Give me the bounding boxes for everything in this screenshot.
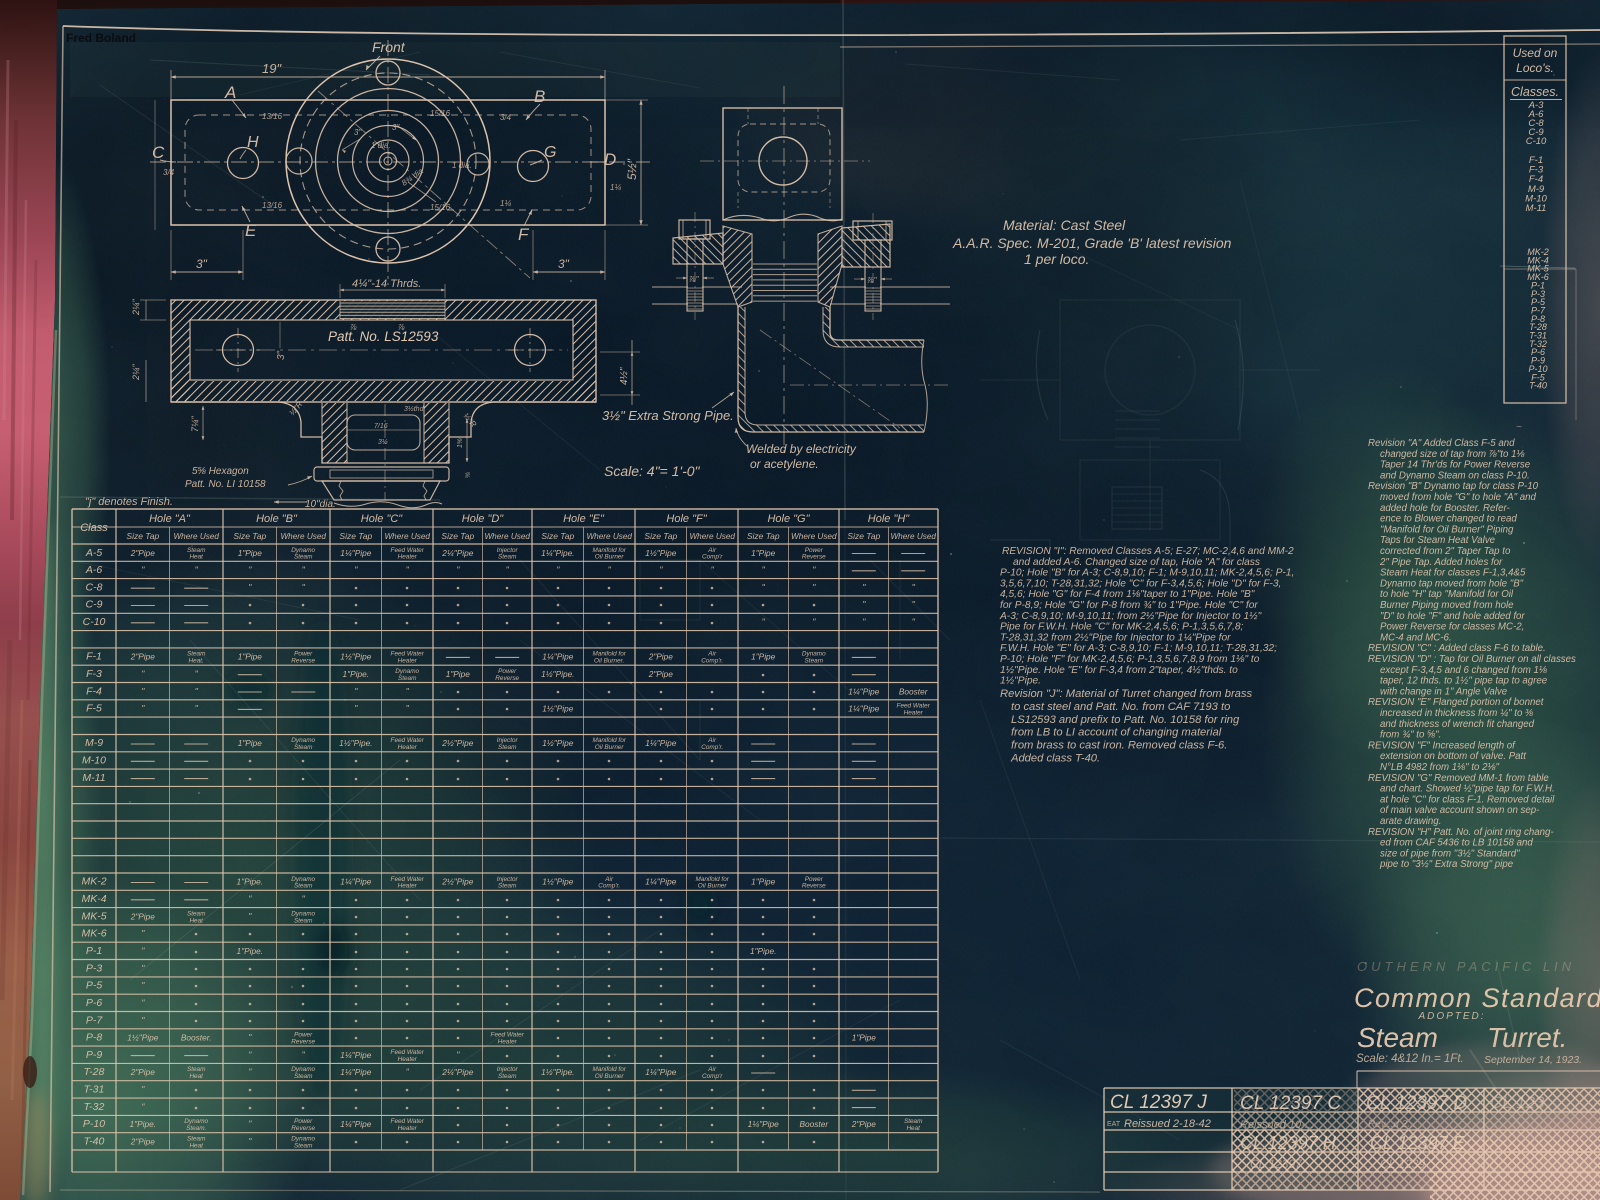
svg-text:OUTHERN PACIFIC LIN: OUTHERN PACIFIC LIN xyxy=(1357,959,1575,974)
svg-text:3½thd: 3½thd xyxy=(404,405,425,413)
svg-text:Reverse: Reverse xyxy=(291,1039,315,1046)
svg-text:CL 12397: CL 12397 xyxy=(1250,1157,1303,1171)
svg-text:2"Pipe: 2"Pipe xyxy=(851,1119,877,1129)
svg-text:M-11: M-11 xyxy=(82,772,105,784)
svg-text:Oil Burner.: Oil Burner. xyxy=(594,658,624,665)
svg-text:to cast steel and Patt. No.: to cast steel and Patt. No. from CAF 719… xyxy=(1011,701,1230,713)
svg-text:Taper 14 Thr'ds for Power Reve: Taper 14 Thr'ds for Power Reverse xyxy=(1380,460,1531,471)
svg-text:T-31: T-31 xyxy=(84,1084,105,1096)
svg-text:Heat.: Heat. xyxy=(189,658,204,665)
svg-text:Size Tap: Size Tap xyxy=(644,531,677,541)
svg-text:Loco's.: Loco's. xyxy=(1516,61,1554,75)
svg-text:Size Tap: Size Tap xyxy=(233,531,266,541)
svg-text:Heater: Heater xyxy=(398,744,418,751)
svg-text:except F-3,4,5 and 6 changed f: except F-3,4,5 and 6 changed from 1⅛ xyxy=(1380,665,1548,676)
svg-text:1"Pipe: 1"Pipe xyxy=(751,548,776,558)
svg-text:extension on bottom of valve.: extension on bottom of valve. Patt xyxy=(1380,751,1527,762)
svg-text:2¼"Pipe: 2¼"Pipe xyxy=(441,1067,473,1077)
svg-text:2"Pipe: 2"Pipe xyxy=(130,911,156,921)
svg-text:Oil Burner: Oil Burner xyxy=(595,554,625,561)
svg-text:or acetylene.: or acetylene. xyxy=(750,457,819,471)
svg-text:F-5: F-5 xyxy=(86,703,102,715)
svg-text:1¼"Pipe: 1¼"Pipe xyxy=(542,652,573,662)
svg-text:F-3: F-3 xyxy=(86,668,102,680)
svg-text:A-6: A-6 xyxy=(85,564,103,576)
svg-text:2"Pipe: 2"Pipe xyxy=(130,652,156,662)
svg-text:MC-4 and MC-6.: MC-4 and MC-6. xyxy=(1380,632,1452,643)
svg-text:Reissued 10-...: Reissued 10-... xyxy=(1240,1119,1314,1131)
svg-text:Revision "A" Added Class F-5: Revision "A" Added Class F-5 and xyxy=(1368,438,1515,449)
svg-text:REVISION "D" : Tap for Oil Bu: REVISION "D" : Tap for Oil Burner on all… xyxy=(1368,654,1576,665)
svg-text:Steam: Steam xyxy=(398,675,417,682)
svg-text:B: B xyxy=(534,87,545,106)
svg-text:Hole "B": Hole "B" xyxy=(256,513,298,525)
svg-text:Steam.: Steam. xyxy=(186,1125,206,1132)
svg-text:3": 3" xyxy=(196,257,208,271)
svg-text:C-9: C-9 xyxy=(86,599,103,611)
svg-text:Added class T-40.: Added class T-40. xyxy=(1010,753,1100,765)
svg-text:1¼"Pipe: 1¼"Pipe xyxy=(340,548,371,558)
svg-text:⅞: ⅞ xyxy=(350,323,357,332)
svg-text:C-10: C-10 xyxy=(83,616,106,628)
svg-text:Burner Piping moved from hole: Burner Piping moved from hole xyxy=(1380,600,1514,611)
svg-text:Class: Class xyxy=(80,522,108,534)
svg-text:Fred Boland: Fred Boland xyxy=(66,31,136,45)
svg-text:1¼"Pipe: 1¼"Pipe xyxy=(340,1119,371,1129)
svg-text:Size Tap: Size Tap xyxy=(126,531,159,541)
svg-text:Where Used: Where Used xyxy=(484,532,530,541)
svg-text:1"Pipe.: 1"Pipe. xyxy=(750,946,776,956)
svg-text:changed size of tap from ⅞"to: changed size of tap from ⅞"to 1⅛ xyxy=(1380,449,1525,460)
svg-text:"D" to hole "F" and hole added: "D" to hole "F" and hole added for xyxy=(1380,611,1525,622)
svg-text:Reverse: Reverse xyxy=(802,883,826,890)
svg-text:Booster: Booster xyxy=(899,686,929,696)
svg-text:Comp'r.: Comp'r. xyxy=(598,883,620,890)
svg-text:13/16: 13/16 xyxy=(262,201,283,210)
svg-text:Where Used: Where Used xyxy=(384,532,430,541)
svg-text:T-28: T-28 xyxy=(84,1066,105,1078)
svg-text:Welded by electricity: Welded by electricity xyxy=(746,442,857,456)
svg-text:Size Tap: Size Tap xyxy=(747,531,780,541)
svg-text:A.A.R. Spec. M-201, Grade 'B': A.A.R. Spec. M-201, Grade 'B' latest rev… xyxy=(952,235,1232,251)
svg-text:CL 123: CL 123 xyxy=(1490,1093,1545,1112)
svg-text:Steam: Steam xyxy=(294,883,313,890)
svg-text:for P-8,9; Hole "G" for P-8 fr: for P-8,9; Hole "G" for P-8 from ¾" to 1… xyxy=(1000,600,1258,611)
svg-text:corrected from 2" Taper Tap to: corrected from 2" Taper Tap to xyxy=(1380,546,1511,557)
svg-text:3,5,6,7,10; T-28,31,32; Hole ": 3,5,6,7,10; T-28,31,32; Hole "C" for F-3… xyxy=(1000,578,1281,589)
svg-text:Heat: Heat xyxy=(189,1142,203,1149)
svg-text:LS12593 and prefix to Patt.: LS12593 and prefix to Patt. No. 10158 fo… xyxy=(1011,714,1240,726)
svg-text:4,5,6; Hole "G" for F-4 from 1: 4,5,6; Hole "G" for F-4 from 1⅛"taper to… xyxy=(1000,589,1255,600)
svg-text:1½"Pipe: 1½"Pipe xyxy=(542,877,573,887)
svg-text:Steam Heat for classes F-1,3,4: Steam Heat for classes F-1,3,4&5 xyxy=(1380,568,1526,579)
svg-text:from ¾" to ⅝".: from ¾" to ⅝". xyxy=(1380,730,1441,741)
svg-text:3": 3" xyxy=(354,128,362,137)
svg-text:Steam: Steam xyxy=(805,658,824,665)
svg-text:1¼"Pipe: 1¼"Pipe xyxy=(748,1119,779,1129)
svg-text:ADOPTED:: ADOPTED: xyxy=(1417,1011,1485,1022)
svg-text:MK-5: MK-5 xyxy=(81,910,106,922)
svg-text:⅞": ⅞" xyxy=(689,275,700,284)
svg-text:1½"Pipe.: 1½"Pipe. xyxy=(541,1067,574,1077)
svg-text:Steam: Steam xyxy=(294,744,313,751)
svg-text:2½"Pipe: 2½"Pipe xyxy=(441,738,473,748)
svg-text:Pipe for F.W.H. Hole "C" for: Pipe for F.W.H. Hole "C" for MK-2,4,5,6;… xyxy=(1000,622,1244,633)
svg-text:Heater: Heater xyxy=(398,658,418,665)
svg-text:Comp'r: Comp'r xyxy=(702,1073,723,1080)
svg-text:Where Used: Where Used xyxy=(689,532,735,541)
svg-text:MK-2: MK-2 xyxy=(81,876,106,888)
svg-text:Heater: Heater xyxy=(904,710,924,717)
svg-text:H: H xyxy=(247,134,259,151)
svg-text:arate drawing.: arate drawing. xyxy=(1380,816,1441,827)
svg-text:Heater: Heater xyxy=(398,1056,418,1063)
svg-text:MK-4: MK-4 xyxy=(81,893,106,905)
svg-text:2"Pipe: 2"Pipe xyxy=(648,669,674,679)
svg-text:1¼: 1¼ xyxy=(500,199,511,208)
svg-text:⅞": ⅞" xyxy=(867,276,878,285)
svg-text:2"Pipe: 2"Pipe xyxy=(130,1067,156,1077)
svg-text:1⅝: 1⅝ xyxy=(457,438,464,448)
svg-text:Steam: Steam xyxy=(294,917,313,924)
svg-text:of main valve account shown on: of main valve account shown on sep- xyxy=(1380,805,1540,816)
svg-text:Feed Water: Feed Water xyxy=(391,737,425,744)
svg-text:Heat: Heat xyxy=(189,917,203,924)
svg-text:1¼"Pipe: 1¼"Pipe xyxy=(340,1050,371,1060)
svg-text:Material: Cast Steel: Material: Cast Steel xyxy=(1003,217,1126,233)
svg-text:2¼": 2¼" xyxy=(131,363,141,381)
svg-text:1 dia.: 1 dia. xyxy=(371,141,391,150)
svg-text:2"Pipe: 2"Pipe xyxy=(130,1137,156,1147)
svg-text:Steam: Steam xyxy=(498,554,517,561)
svg-text:Manifold for: Manifold for xyxy=(593,737,627,744)
svg-text:REVISION "F" Increased length: REVISION "F" Increased length of xyxy=(1368,740,1516,751)
svg-text:Hole "E": Hole "E" xyxy=(563,513,605,525)
svg-text:E: E xyxy=(245,221,257,240)
svg-text:Revision "J": Material of Tur: Revision "J": Material of Turret changed… xyxy=(1000,688,1252,700)
svg-text:Reverse: Reverse xyxy=(291,1125,315,1132)
svg-text:Where Used: Where Used xyxy=(890,532,936,541)
svg-text:CL 12397 E: CL 12397 E xyxy=(1370,1133,1466,1153)
svg-text:CL 12397 C: CL 12397 C xyxy=(1240,1093,1341,1114)
svg-text:Dynamo tap moved from hole "B": Dynamo tap moved from hole "B" xyxy=(1380,578,1524,589)
svg-text:Size Tap: Size Tap xyxy=(441,531,474,541)
svg-text:2¼"Pipe: 2¼"Pipe xyxy=(441,548,473,558)
svg-text:REVISION "I": Removed Classes: REVISION "I": Removed Classes A-5; E-27;… xyxy=(1002,546,1294,557)
svg-text:D: D xyxy=(604,150,616,169)
svg-text:7/16: 7/16 xyxy=(374,423,388,430)
svg-text:15/16: 15/16 xyxy=(430,203,451,212)
svg-text:CL 12397 H: CL 12397 H xyxy=(1240,1133,1337,1153)
svg-text:Reverse: Reverse xyxy=(291,658,315,665)
svg-text:CL 12397 J: CL 12397 J xyxy=(1110,1092,1207,1113)
svg-text:Reissued 2-18-42: Reissued 2-18-42 xyxy=(1124,1118,1211,1130)
svg-text:Size Tap: Size Tap xyxy=(847,531,880,541)
svg-text:P-3: P-3 xyxy=(86,962,103,974)
svg-text:REVISION "H" Patt. No. of joi: REVISION "H" Patt. No. of joint ring cha… xyxy=(1368,827,1554,838)
svg-text:added hole for Booster. Refer: added hole for Booster. Refer- xyxy=(1380,503,1511,514)
svg-text:1½"Pipe. Hole "E" for F-3,4 f: 1½"Pipe. Hole "E" for F-3,4 from 2"taper… xyxy=(1000,665,1238,676)
svg-text:REVISION "E" Flanged portion: REVISION "E" Flanged portion of bonnet xyxy=(1368,697,1545,708)
svg-text:Patt. No. LS12593: Patt. No. LS12593 xyxy=(328,329,439,344)
svg-text:1½"Pipe.: 1½"Pipe. xyxy=(1000,676,1041,687)
svg-text:Dynamo: Dynamo xyxy=(291,737,315,744)
svg-text:P-6: P-6 xyxy=(86,997,103,1009)
svg-text:Steam: Steam xyxy=(294,1142,313,1149)
svg-text:P-10; Hole "F" for MK-2,4,5,6;: P-10; Hole "F" for MK-2,4,5,6; P-1,3,5,6… xyxy=(1000,654,1260,665)
svg-text:1"Pipe: 1"Pipe xyxy=(751,877,776,887)
svg-text:1¼"Pipe: 1¼"Pipe xyxy=(340,1067,371,1077)
svg-text:T-40: T-40 xyxy=(84,1136,105,1148)
svg-text:P-7: P-7 xyxy=(86,1014,104,1026)
svg-text:Oil Burner: Oil Burner xyxy=(698,883,728,890)
svg-text:Steam: Steam xyxy=(498,1073,517,1080)
svg-text:and added A-6. Changed size o: and added A-6. Changed size of tap, Hole… xyxy=(1013,557,1260,568)
svg-text:CL 1239: CL 1239 xyxy=(1380,1157,1425,1171)
svg-text:A-3; C-8,9,10; M-9,10,11; from: A-3; C-8,9,10; M-9,10,11; from 2½"Pipe f… xyxy=(999,611,1262,622)
svg-text:1"Pipe: 1"Pipe xyxy=(238,548,263,558)
svg-text:7¼": 7¼" xyxy=(190,415,200,432)
svg-text:T-28,31,32 from 2½"Pipe for In: T-28,31,32 from 2½"Pipe for Injector to … xyxy=(1000,631,1231,643)
svg-text:1¼"Pipe.: 1¼"Pipe. xyxy=(541,548,574,558)
svg-text:"j" denotes Finish.: "j" denotes Finish. xyxy=(85,496,173,508)
svg-text:Power Reverse for classes MC-2: Power Reverse for classes MC-2, xyxy=(1380,622,1524,633)
svg-text:Heater: Heater xyxy=(398,1125,418,1132)
svg-text:1"Pipe: 1"Pipe xyxy=(238,738,263,748)
svg-text:C-8: C-8 xyxy=(86,581,103,593)
svg-text:G: G xyxy=(544,144,556,161)
svg-text:1¼: 1¼ xyxy=(610,183,621,192)
svg-text:1½"Pipe: 1½"Pipe xyxy=(542,738,573,748)
svg-text:Comp'r.: Comp'r. xyxy=(701,658,723,665)
svg-text:T-32: T-32 xyxy=(84,1101,105,1113)
svg-text:Scale: 4"= 1'-0": Scale: 4"= 1'-0" xyxy=(604,463,701,479)
svg-text:2" Pipe Tap. Added holes for: 2" Pipe Tap. Added holes for xyxy=(1379,557,1503,568)
svg-text:REVISION "G" Removed MM-1 fr: REVISION "G" Removed MM-1 from table xyxy=(1368,773,1549,784)
svg-text:T-40: T-40 xyxy=(1529,381,1547,391)
svg-text:Oil Burner: Oil Burner xyxy=(595,1073,625,1080)
svg-text:Where Used: Where Used xyxy=(586,532,632,541)
svg-text:Where Used: Where Used xyxy=(791,532,837,541)
svg-text:and thickness of wrench fit ch: and thickness of wrench fit changed xyxy=(1380,719,1535,730)
svg-text:1¼"Pipe: 1¼"Pipe xyxy=(340,877,371,887)
svg-text:F: F xyxy=(518,225,530,244)
svg-text:Where Used: Where Used xyxy=(173,532,219,541)
svg-text:3": 3" xyxy=(276,350,287,360)
svg-text:1¼"Pipe: 1¼"Pipe xyxy=(645,1067,676,1077)
svg-text:1"Pipe.: 1"Pipe. xyxy=(237,877,263,887)
svg-text:Heat: Heat xyxy=(189,1073,203,1080)
svg-text:with change in 1" Angle Valve: with change in 1" Angle Valve xyxy=(1380,686,1508,697)
svg-text:F-1: F-1 xyxy=(86,651,102,663)
svg-text:Hole "H": Hole "H" xyxy=(868,513,911,525)
svg-text:Steam: Steam xyxy=(294,1073,313,1080)
svg-text:and Dynamo Steam on class P-10: and Dynamo Steam on class P-10. xyxy=(1380,470,1530,481)
svg-text:1"Pipe: 1"Pipe xyxy=(852,1033,877,1043)
svg-text:Taps for Steam Heat Valve: Taps for Steam Heat Valve xyxy=(1380,535,1496,546)
svg-text:Used on: Used on xyxy=(1513,46,1558,60)
svg-text:P-10; Hole "B" for A-3; C-8,9,: P-10; Hole "B" for A-3; C-8,9,10; F-1; M… xyxy=(1000,568,1294,579)
svg-text:~: ~ xyxy=(1516,422,1522,433)
svg-text:ed from CAF 5436 to LB 10158 a: ed from CAF 5436 to LB 10158 and xyxy=(1380,838,1533,849)
svg-text:1"Pipe: 1"Pipe xyxy=(751,652,776,662)
svg-text:1½"Pipe: 1½"Pipe xyxy=(542,704,573,714)
svg-text:3/4: 3/4 xyxy=(500,113,512,122)
svg-text:A: A xyxy=(224,83,236,102)
svg-text:P-10: P-10 xyxy=(83,1118,105,1130)
svg-text:increased in thickness from ¼": increased in thickness from ¼" to ⅜ xyxy=(1380,708,1534,719)
svg-text:Steam: Steam xyxy=(1357,1022,1438,1053)
svg-text:C: C xyxy=(152,143,165,162)
svg-text:moved from hole "G" to hole "A: moved from hole "G" to hole "A" and xyxy=(1380,492,1537,503)
svg-text:2¼": 2¼" xyxy=(131,298,141,316)
svg-text:Size Tap: Size Tap xyxy=(339,531,372,541)
svg-text:Hole "G": Hole "G" xyxy=(767,513,810,525)
svg-text:5⅝ Hexagon: 5⅝ Hexagon xyxy=(192,466,249,477)
svg-text:Front: Front xyxy=(372,39,406,55)
svg-text:1¼"Pipe: 1¼"Pipe xyxy=(848,704,879,714)
svg-text:4¼"-14 Thrds.: 4¼"-14 Thrds. xyxy=(352,278,421,290)
svg-text:Hole "F": Hole "F" xyxy=(666,513,707,525)
svg-text:Steam: Steam xyxy=(294,554,313,561)
svg-text:Heater: Heater xyxy=(398,883,418,890)
svg-text:1 per loco.: 1 per loco. xyxy=(1024,251,1089,267)
svg-text:⅝: ⅝ xyxy=(465,472,472,478)
svg-text:Hole "D": Hole "D" xyxy=(462,513,505,525)
svg-text:Comp'r: Comp'r xyxy=(702,554,723,561)
svg-text:REVISION "C" : Added class F-: REVISION "C" : Added class F-6 to table. xyxy=(1368,643,1546,654)
svg-text:3": 3" xyxy=(392,123,400,132)
svg-text:Heater: Heater xyxy=(398,554,418,561)
svg-text:Size Tap: Size Tap xyxy=(541,531,574,541)
svg-text:P-8: P-8 xyxy=(86,1032,103,1044)
svg-text:Classes.: Classes. xyxy=(1511,85,1559,99)
svg-text:and chart. Showed ½"pipe tap f: and chart. Showed ½"pipe tap for F.W.H. xyxy=(1380,784,1555,795)
svg-text:Injector: Injector xyxy=(497,737,519,744)
svg-text:Common Standard: Common Standard xyxy=(1354,983,1600,1013)
svg-text:"Manifold for Oil Burner" Pipi: "Manifold for Oil Burner" Piping xyxy=(1380,524,1514,535)
svg-text:1 dia.: 1 dia. xyxy=(452,161,472,170)
svg-text:1¼"Pipe: 1¼"Pipe xyxy=(645,877,676,887)
svg-text:5½": 5½" xyxy=(625,158,639,180)
svg-text:F.W.H. Hole "E" for A-3; C-8,: F.W.H. Hole "E" for A-3; C-8,9,10; F-1; … xyxy=(1000,643,1277,654)
svg-text:M-10: M-10 xyxy=(82,755,106,767)
svg-text:size of pipe from "3½" Standar: size of pipe from "3½" Standard" xyxy=(1380,848,1520,859)
svg-text:P-1: P-1 xyxy=(86,945,102,957)
svg-text:at hole "C" for class F-1. Re: at hole "C" for class F-1. Removed detai… xyxy=(1380,794,1555,805)
svg-text:from brass to cast iron. Remo: from brass to cast iron. Removed class F… xyxy=(1011,740,1227,752)
svg-text:2"Pipe: 2"Pipe xyxy=(130,548,156,558)
svg-text:13/16: 13/16 xyxy=(262,112,283,121)
svg-text:P-9: P-9 xyxy=(86,1049,103,1061)
svg-text:Reverse: Reverse xyxy=(495,675,519,682)
svg-text:1½"Pipe.: 1½"Pipe. xyxy=(541,669,574,679)
svg-text:Rev...d 2...: Rev...d 2... xyxy=(1368,1119,1416,1130)
svg-text:1"Pipe.: 1"Pipe. xyxy=(343,669,369,679)
svg-text:19": 19" xyxy=(262,61,282,76)
svg-text:P-5: P-5 xyxy=(86,980,103,992)
svg-text:taper, 12 thds. to 1½" pipe ta: taper, 12 thds. to 1½" pipe tap to agree xyxy=(1380,676,1548,687)
svg-text:1½"Pipe: 1½"Pipe xyxy=(340,652,371,662)
svg-text:Patt. No. LI 10158: Patt. No. LI 10158 xyxy=(185,479,266,490)
svg-text:1"Pipe.: 1"Pipe. xyxy=(237,946,263,956)
svg-text:Heater: Heater xyxy=(498,1039,518,1046)
svg-text:Where Used: Where Used xyxy=(280,532,326,541)
svg-text:1¼"Pipe: 1¼"Pipe xyxy=(848,686,879,696)
svg-text:A-5: A-5 xyxy=(85,547,103,559)
svg-text:1"Pipe: 1"Pipe xyxy=(446,669,471,679)
svg-text:Air: Air xyxy=(707,737,717,744)
svg-text:Booster: Booster xyxy=(800,1119,830,1129)
svg-text:Revision "B" Dynamo tap for c: Revision "B" Dynamo tap for class P-10 xyxy=(1368,481,1539,492)
svg-text:M-9: M-9 xyxy=(85,737,103,749)
svg-text:M-11: M-11 xyxy=(1526,203,1547,214)
svg-text:Heat: Heat xyxy=(906,1125,920,1132)
svg-text:2½"Pipe: 2½"Pipe xyxy=(441,877,473,887)
svg-text:CL 12397 D: CL 12397 D xyxy=(1366,1093,1467,1114)
svg-text:1"Pipe.: 1"Pipe. xyxy=(130,1119,156,1129)
svg-text:Booster.: Booster. xyxy=(181,1033,212,1043)
svg-text:Hole "A": Hole "A" xyxy=(149,513,191,525)
svg-text:F-4: F-4 xyxy=(86,685,102,697)
svg-text:⅞: ⅞ xyxy=(398,323,405,332)
svg-text:ence to Blower changed to read: ence to Blower changed to read xyxy=(1380,514,1517,525)
svg-text:Heat: Heat xyxy=(189,554,203,561)
svg-text:1"Pipe: 1"Pipe xyxy=(238,652,263,662)
svg-text:Hole "C": Hole "C" xyxy=(361,513,404,525)
svg-text:Steam: Steam xyxy=(498,883,517,890)
svg-text:4½": 4½" xyxy=(619,367,630,385)
svg-text:to hole "H" tap "Manifold for: to hole "H" tap "Manifold for Oil xyxy=(1380,589,1514,600)
svg-text:3½" Extra Strong Pipe.: 3½" Extra Strong Pipe. xyxy=(602,408,734,423)
svg-text:Oil Burner: Oil Burner xyxy=(595,744,625,751)
svg-text:15/16: 15/16 xyxy=(430,109,451,118)
svg-text:1½"Pipe: 1½"Pipe xyxy=(645,548,676,558)
svg-text:Reverse: Reverse xyxy=(802,554,826,561)
svg-text:1½"Pipe.: 1½"Pipe. xyxy=(339,738,372,748)
svg-text:EAT: EAT xyxy=(1107,1121,1121,1128)
svg-text:pipe to "3½" Extra Strong" pip: pipe to "3½" Extra Strong" pipe xyxy=(1379,859,1514,870)
svg-text:3": 3" xyxy=(558,257,570,271)
svg-text:Steam: Steam xyxy=(498,744,517,751)
svg-text:3/4: 3/4 xyxy=(163,168,175,177)
svg-text:1¼"Pipe: 1¼"Pipe xyxy=(645,738,676,748)
svg-text:MK-6: MK-6 xyxy=(81,928,106,940)
svg-text:C-10: C-10 xyxy=(1526,136,1547,147)
svg-text:2"Pipe: 2"Pipe xyxy=(648,652,674,662)
svg-text:N°LB 4982 from 1⅛" to 2⅛": N°LB 4982 from 1⅛" to 2⅛" xyxy=(1380,762,1500,773)
svg-text:3½: 3½ xyxy=(378,438,388,446)
svg-text:from LB to LI account of ch: from LB to LI account of changing materi… xyxy=(1011,727,1222,739)
svg-text:1½"Pipe: 1½"Pipe xyxy=(127,1033,158,1043)
svg-text:Comp'r.: Comp'r. xyxy=(701,744,723,751)
